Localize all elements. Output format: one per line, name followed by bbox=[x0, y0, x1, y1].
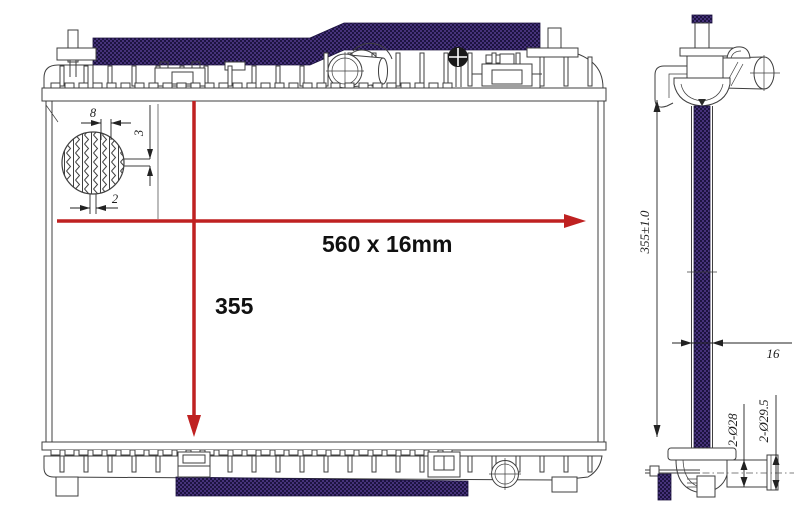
width-dimension: 560 x 16mm bbox=[57, 214, 586, 257]
filler-cap-side bbox=[692, 15, 712, 23]
side-thickness-dimension: 16 bbox=[672, 340, 792, 362]
radiator-cap-front bbox=[449, 48, 468, 88]
bottom-crimp-teeth bbox=[46, 450, 457, 455]
detail-pitch-label: 8 bbox=[90, 106, 97, 120]
detail-dim-tube-thickness: 2 bbox=[70, 192, 118, 211]
outlet-pipe-side bbox=[727, 455, 778, 490]
pipe-outer-diameter-label: 2-Ø29.5 bbox=[756, 399, 771, 442]
top-gasket-band bbox=[93, 23, 540, 65]
top-connector-right bbox=[472, 54, 542, 86]
pipe-inner-diameter-label: 2-Ø28 bbox=[725, 413, 740, 447]
fin-detail-callout: 8 3 2 bbox=[62, 105, 153, 214]
top-crimp-teeth bbox=[46, 83, 457, 88]
radiator-side-view: 355±1.0 16 2-Ø28 2-Ø29.5 bbox=[637, 15, 794, 500]
side-thickness-label: 16 bbox=[767, 346, 781, 361]
front-bottom-tank bbox=[42, 442, 606, 496]
filler-neck-side bbox=[695, 23, 709, 50]
width-dimension-label: 560 x 16mm bbox=[322, 231, 452, 257]
side-bottom-collar bbox=[668, 448, 736, 460]
right-foot bbox=[552, 477, 577, 492]
technical-drawing-svg: 8 3 2 560 x 16mm bbox=[0, 0, 800, 519]
height-dimension-label: 355 bbox=[215, 293, 254, 319]
detail-fin-height-label: 3 bbox=[132, 130, 146, 137]
detail-dim-fin-height: 3 bbox=[132, 105, 153, 186]
side-height-dimension: 355±1.0 bbox=[637, 100, 661, 437]
top-header-plate bbox=[42, 88, 606, 101]
height-dimension: 355 bbox=[187, 101, 254, 437]
front-core bbox=[46, 101, 604, 442]
side-core-column bbox=[687, 106, 717, 448]
front-top-tank bbox=[42, 23, 606, 101]
bottom-header-plate bbox=[42, 442, 606, 450]
side-height-label: 355±1.0 bbox=[637, 210, 652, 254]
side-bottom-tank bbox=[645, 448, 794, 500]
bottom-gasket-band bbox=[176, 477, 468, 496]
bottom-connector-right bbox=[428, 452, 460, 477]
drawing-canvas: 8 3 2 560 x 16mm bbox=[0, 0, 800, 519]
radiator-front-view: 8 3 2 560 x 16mm bbox=[42, 23, 606, 496]
detail-tube-thickness-label: 2 bbox=[112, 192, 118, 206]
side-top-tank bbox=[655, 15, 780, 107]
left-foot bbox=[56, 477, 78, 496]
inlet-pipe-side bbox=[723, 47, 780, 91]
bottom-connector-left bbox=[178, 452, 210, 477]
side-top-dome bbox=[674, 78, 730, 106]
